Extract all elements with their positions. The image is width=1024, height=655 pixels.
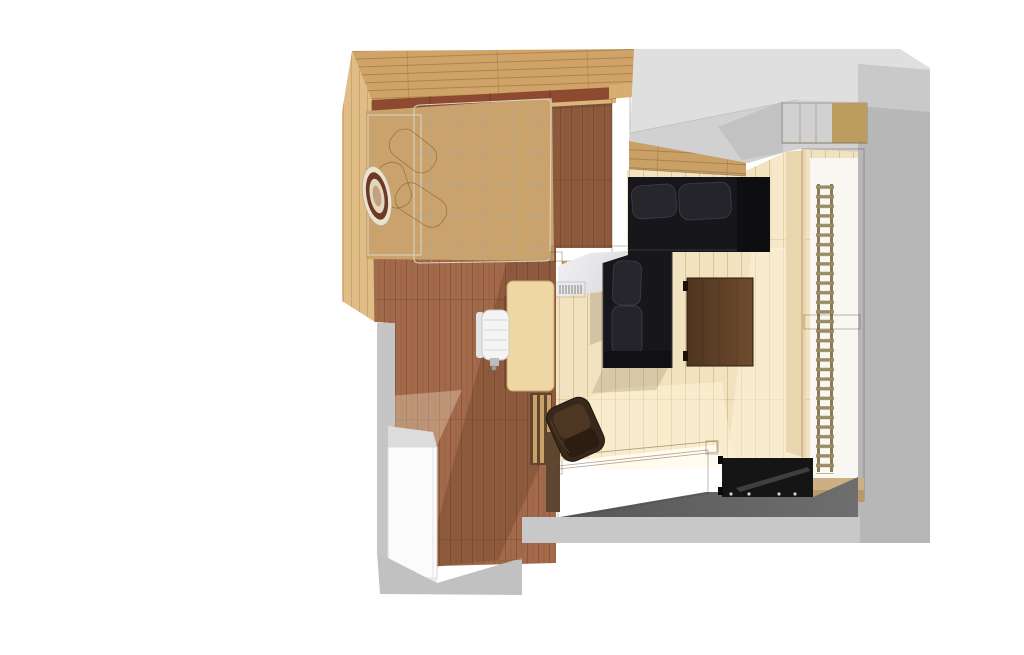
sofa-armrest-bottom — [603, 351, 672, 368]
lower-wall-band — [522, 517, 860, 543]
window-jamb — [786, 150, 806, 458]
balustrade-top-cap — [609, 83, 633, 99]
office-chair-seat — [482, 310, 509, 360]
sofa-back-cushion-1 — [631, 184, 677, 220]
sofa-back-cushion-2 — [678, 182, 732, 221]
floorplan-render — [0, 0, 1024, 655]
sofa-side-cushion-2 — [612, 306, 642, 354]
sideboard — [718, 456, 813, 497]
office-chair-caster — [490, 358, 499, 366]
wardrobe — [388, 447, 437, 579]
coffee-table — [683, 278, 753, 366]
sofa-arm-right — [737, 177, 770, 252]
sofa-side-cushion-1 — [612, 261, 642, 306]
right-wall — [858, 64, 930, 543]
desk — [507, 281, 554, 391]
window — [786, 149, 864, 502]
floorplan-svg — [0, 0, 1024, 655]
bed — [358, 98, 554, 263]
duvet-quilting — [414, 99, 551, 263]
sofa-shadow-left — [590, 287, 603, 345]
